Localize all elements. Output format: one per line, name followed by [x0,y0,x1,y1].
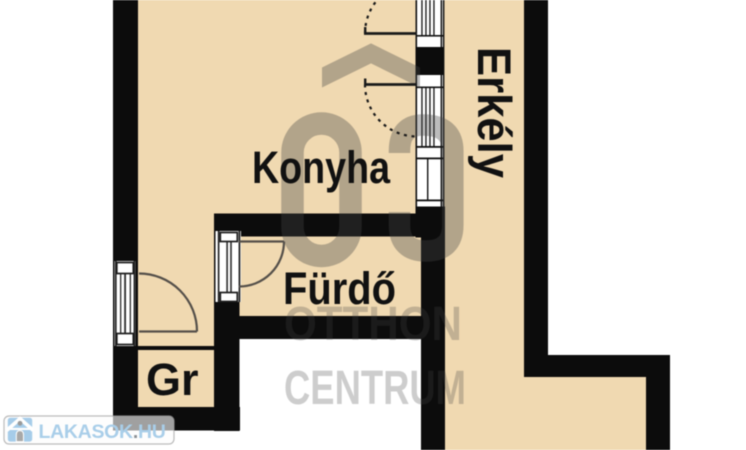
svg-text:Konyha: Konyha [252,142,391,193]
svg-text:Erkély: Erkély [468,47,521,178]
svg-text:LAKASOK.HU: LAKASOK.HU [39,421,166,443]
svg-text:Fürdő: Fürdő [283,263,396,314]
svg-text:CENTRUM: CENTRUM [284,362,466,415]
svg-text:Gr: Gr [146,354,199,405]
